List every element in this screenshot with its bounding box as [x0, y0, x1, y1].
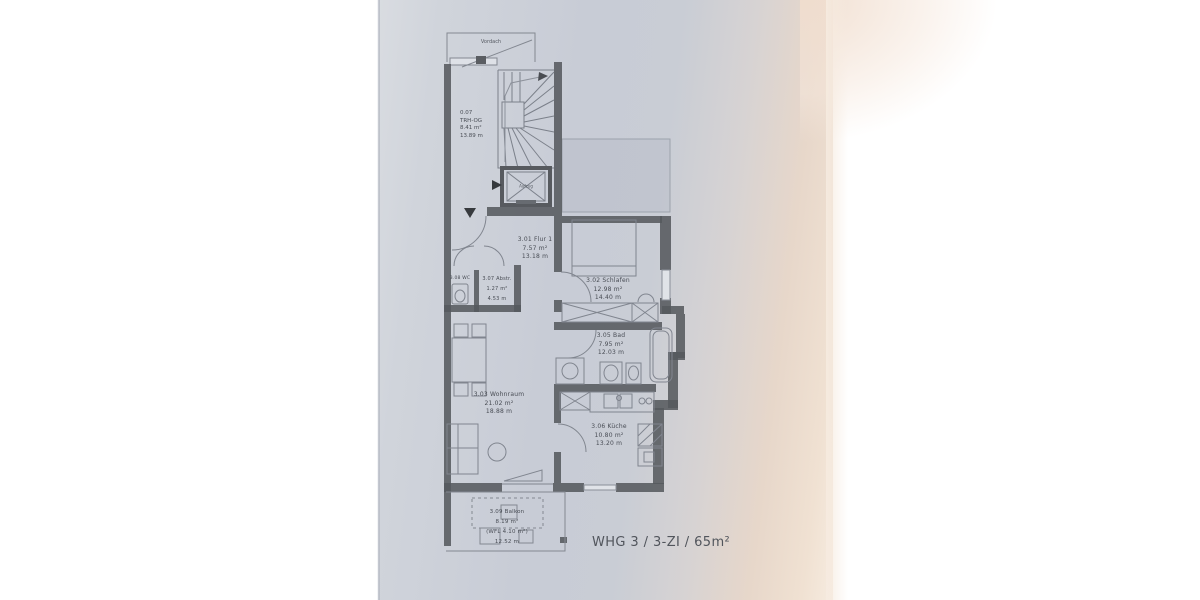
entry-door-panel [476, 56, 486, 64]
wall-bad-right [676, 314, 685, 358]
room-label-balkon: 3.09 Balkon 8.19 m² (WFL 4.10 m²) 12.52 … [486, 507, 528, 547]
wall-bad-jut [662, 306, 684, 314]
balkon-post [560, 537, 567, 543]
top-window [450, 58, 497, 65]
dining-table [452, 338, 486, 382]
balkon-name: 3.09 Balkon [486, 507, 528, 517]
wall-stair-right [554, 62, 562, 207]
wall-bad-kueche [554, 384, 656, 392]
chair [472, 324, 486, 337]
nightstand [638, 294, 654, 302]
apartment-entry-arrow-icon [464, 208, 476, 218]
wall-schlafen-bad [554, 322, 662, 330]
staircase [498, 70, 554, 168]
room-label-schlafen: 3.02 Schlafen 12.98 m² 14.40 m [586, 277, 630, 303]
floorplan-photo-page: Vordach 0.07 TRH-OG 8.41 m² 13.89 m Aufz… [0, 0, 1200, 600]
balkon-perimeter: 12.52 m [486, 537, 528, 547]
wall-bottom-right [616, 483, 664, 492]
wall-flur-schlafen-b [554, 300, 562, 312]
room-label-wohnraum: 3.03 Wohnraum 21.02 m² 18.88 m [474, 391, 525, 417]
plan-title: WHG 3 / 3-ZI / 65m² [592, 535, 730, 550]
kueche-name: 3.06 Küche [591, 423, 627, 432]
room-label-flur: 3.01 Flur 1 7.57 m² 13.18 m [518, 236, 553, 262]
abst-name: 3.07 Abstr. [482, 274, 511, 284]
wall-wc-abst [474, 270, 479, 312]
wohnraum-area: 21.02 m² [474, 400, 525, 409]
wall-wohnen-kueche-b [554, 452, 561, 483]
chair [454, 324, 468, 337]
chair [454, 383, 468, 396]
wall-schlafen-right [660, 216, 671, 270]
schlafen-window [662, 270, 670, 300]
wc-name: 3.08 WC [450, 276, 470, 282]
flur-name: 3.01 Flur 1 [518, 236, 553, 245]
kueche-window [584, 485, 616, 490]
kueche-area: 10.80 m² [591, 432, 627, 441]
bad-area: 7.95 m² [597, 341, 625, 350]
wall-wc-bottom [444, 305, 521, 312]
elevator-label: Aufzug [519, 184, 533, 189]
room-label-abstellraum: 3.07 Abstr. 1.27 m² 4.53 m [482, 274, 511, 304]
schlafen-name: 3.02 Schlafen [586, 277, 630, 286]
balkon-wfl: (WFL 4.10 m²) [486, 527, 528, 537]
sofa [447, 424, 478, 474]
wohnraum-name: 3.03 Wohnraum [474, 391, 525, 400]
kueche-perimeter: 13.20 m [591, 440, 627, 449]
room-label-bad: 3.05 Bad 7.95 m² 12.03 m [597, 332, 625, 358]
flur-perimeter: 13.18 m [518, 253, 553, 262]
toilet [452, 284, 468, 304]
bad-perimeter: 12.03 m [597, 349, 625, 358]
door-entry [452, 216, 486, 250]
vordach-label: Vordach [481, 39, 501, 45]
adjacent-roof-outline [562, 139, 670, 212]
door-bad [568, 330, 596, 358]
wohnraum-perimeter: 18.88 m [474, 408, 525, 417]
schlafen-perimeter: 14.40 m [586, 294, 630, 303]
wall-abst-right [514, 265, 521, 312]
stairwell-area: 8.41 m² [460, 125, 483, 133]
door-abstellraum [484, 246, 504, 266]
stairwell-perimeter: 13.89 m [460, 133, 483, 141]
abst-area: 1.27 m² [482, 284, 511, 294]
stairwell-number: 0.07 [460, 110, 483, 118]
room-label-wc: 3.08 WC [450, 276, 470, 282]
kitchen-sink [604, 394, 618, 408]
wall-bottom-left [444, 483, 502, 492]
side-table [488, 443, 506, 461]
bed [572, 220, 636, 276]
stairwell-name: TRH-OG [460, 118, 483, 126]
wall-flur-schlafen-a [554, 216, 562, 272]
door-kueche [558, 424, 586, 452]
stairwell-label: 0.07 TRH-OG 8.41 m² 13.89 m [460, 110, 483, 140]
washing-machine [556, 358, 584, 384]
wall-bottom-mid [553, 483, 584, 492]
room-label-kueche: 3.06 Küche 10.80 m² 13.20 m [591, 423, 627, 449]
abst-perimeter: 4.53 m [482, 294, 511, 304]
wall-entry-top [487, 207, 562, 216]
door-wc [454, 246, 474, 266]
schlafen-area: 12.98 m² [586, 286, 630, 295]
door-balkon-slider [504, 470, 542, 481]
bad-name: 3.05 Bad [597, 332, 625, 341]
flur-area: 7.57 m² [518, 245, 553, 254]
balkon-area: 8.19 m² [486, 517, 528, 527]
